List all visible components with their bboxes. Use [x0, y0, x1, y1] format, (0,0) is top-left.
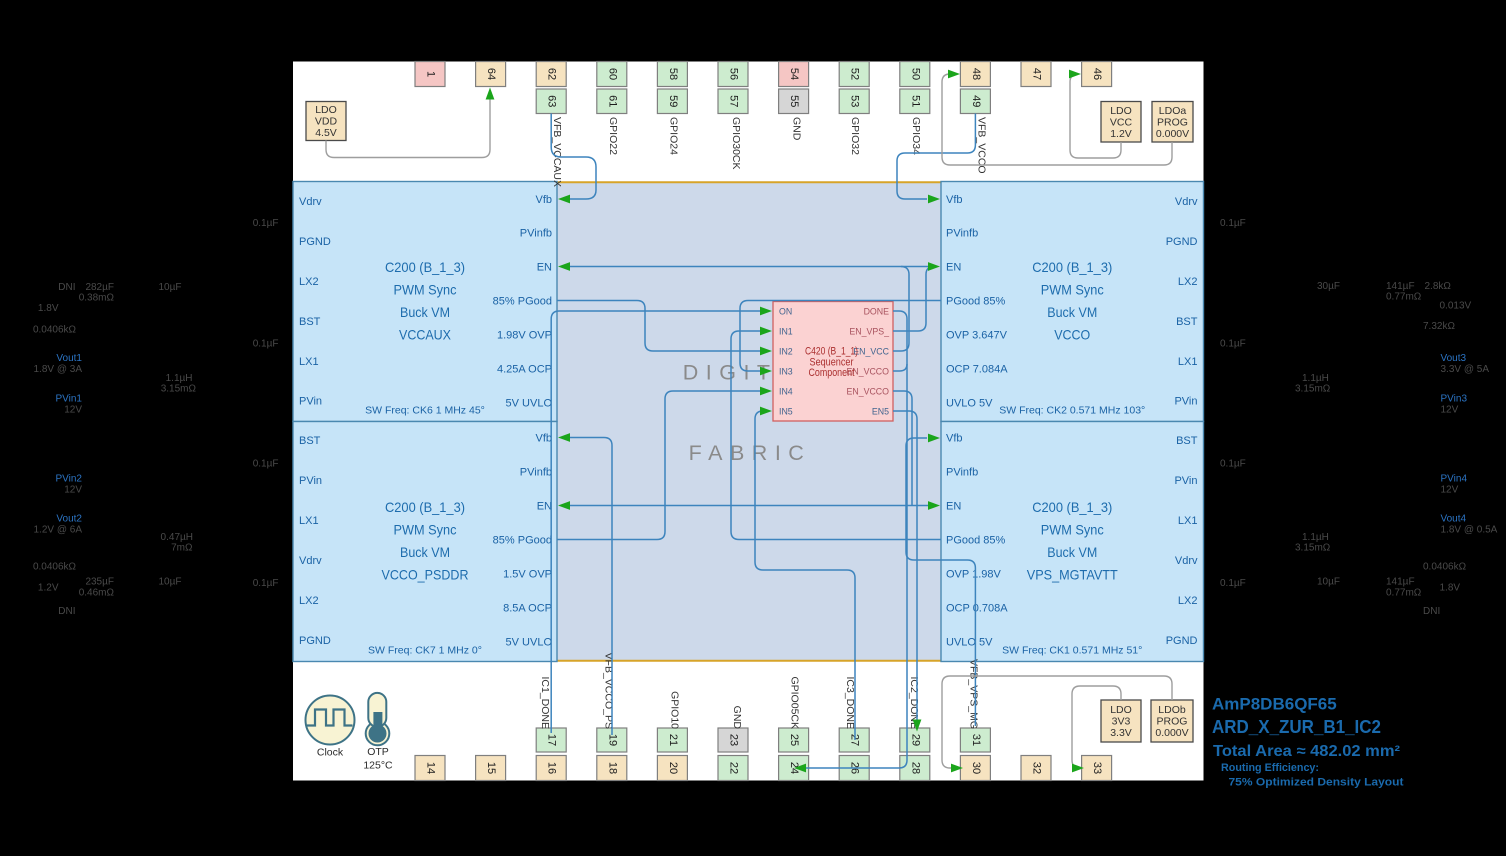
- svg-text:VCCO: VCCO: [1054, 327, 1090, 343]
- svg-text:VCCO_PSDDR: VCCO_PSDDR: [382, 567, 469, 583]
- svg-text:C200 (B_1_3): C200 (B_1_3): [385, 499, 465, 515]
- svg-text:85% PGood: 85% PGood: [493, 535, 552, 547]
- svg-text:EN: EN: [537, 501, 552, 513]
- svg-text:3.15mΩ: 3.15mΩ: [1295, 384, 1331, 395]
- svg-text:0.1µF: 0.1µF: [1220, 339, 1246, 350]
- svg-text:56: 56: [728, 68, 740, 80]
- svg-text:LX2: LX2: [1178, 276, 1198, 288]
- svg-text:Buck VM: Buck VM: [1047, 304, 1097, 320]
- svg-text:DNI: DNI: [1423, 606, 1440, 617]
- svg-text:Vfb: Vfb: [946, 433, 963, 445]
- svg-text:SW Freq: CK1 0.571 MHz 51°: SW Freq: CK1 0.571 MHz 51°: [1002, 645, 1142, 657]
- svg-text:12V: 12V: [1441, 405, 1459, 416]
- svg-text:LX2: LX2: [299, 276, 319, 288]
- svg-text:PVin: PVin: [1174, 396, 1197, 408]
- svg-text:53: 53: [849, 95, 861, 107]
- svg-text:VFB_VCCAUX: VFB_VCCAUX: [551, 117, 563, 187]
- svg-text:3.3V: 3.3V: [1110, 727, 1132, 739]
- svg-text:DONE: DONE: [864, 306, 890, 316]
- svg-text:C200 (B_1_3): C200 (B_1_3): [385, 259, 465, 275]
- svg-text:54: 54: [788, 68, 800, 80]
- svg-text:1.8V @ 3A: 1.8V @ 3A: [33, 364, 82, 375]
- svg-text:VCC: VCC: [1110, 116, 1133, 128]
- svg-text:125°C: 125°C: [363, 760, 393, 772]
- svg-text:Vfb: Vfb: [535, 433, 552, 445]
- svg-text:1: 1: [425, 71, 437, 77]
- svg-text:12V: 12V: [1441, 485, 1459, 496]
- svg-text:SW Freq: CK2 0.571 MHz 103°: SW Freq: CK2 0.571 MHz 103°: [999, 405, 1145, 417]
- svg-text:OCP 7.084A: OCP 7.084A: [946, 364, 1008, 376]
- svg-text:57: 57: [728, 95, 740, 107]
- svg-text:5V UVLO: 5V UVLO: [506, 398, 553, 410]
- svg-text:64: 64: [485, 68, 497, 80]
- svg-text:PGND: PGND: [1166, 635, 1198, 647]
- svg-text:LDOb: LDOb: [1158, 704, 1186, 716]
- svg-text:0.1µF: 0.1µF: [1220, 459, 1246, 470]
- svg-text:62: 62: [546, 68, 558, 80]
- svg-text:58: 58: [667, 68, 679, 80]
- svg-text:282µF: 282µF: [85, 282, 114, 293]
- svg-text:VCCAUX: VCCAUX: [399, 327, 452, 343]
- svg-text:0.1µF: 0.1µF: [1220, 218, 1246, 229]
- svg-text:ARD_X_ZUR_B1_IC2: ARD_X_ZUR_B1_IC2: [1212, 716, 1381, 737]
- svg-text:1.98V OVP: 1.98V OVP: [497, 330, 552, 342]
- svg-text:3.15mΩ: 3.15mΩ: [1295, 543, 1331, 554]
- svg-text:EN5: EN5: [872, 406, 889, 416]
- svg-text:GND: GND: [791, 117, 803, 141]
- svg-text:Vfb: Vfb: [946, 194, 963, 206]
- svg-text:29: 29: [909, 734, 921, 746]
- svg-text:1.1µH: 1.1µH: [166, 373, 193, 384]
- svg-text:AmP8DB6QF65: AmP8DB6QF65: [1212, 695, 1337, 714]
- svg-text:0.1µF: 0.1µF: [253, 339, 279, 350]
- svg-text:LDO: LDO: [1110, 704, 1132, 716]
- svg-text:Vfb: Vfb: [535, 194, 552, 206]
- svg-text:Vdrv: Vdrv: [1175, 196, 1198, 208]
- svg-text:PVin: PVin: [299, 396, 322, 408]
- svg-text:LX1: LX1: [299, 356, 319, 368]
- svg-text:OVP 3.647V: OVP 3.647V: [946, 330, 1008, 342]
- svg-text:0.77mΩ: 0.77mΩ: [1386, 292, 1422, 303]
- svg-text:LX1: LX1: [1178, 356, 1198, 368]
- svg-text:LX2: LX2: [299, 595, 319, 607]
- svg-text:10µF: 10µF: [159, 282, 182, 293]
- svg-text:16: 16: [546, 762, 558, 774]
- svg-text:0.77mΩ: 0.77mΩ: [1386, 588, 1422, 599]
- svg-text:C200 (B_1_3): C200 (B_1_3): [1032, 259, 1112, 275]
- svg-text:63: 63: [546, 95, 558, 107]
- svg-text:PGood 85%: PGood 85%: [946, 296, 1006, 308]
- svg-text:IC1_DONE: IC1_DONE: [539, 676, 551, 729]
- svg-text:VPS_MGTAVTT: VPS_MGTAVTT: [1027, 567, 1118, 583]
- svg-text:IN5: IN5: [779, 406, 793, 416]
- svg-text:IN1: IN1: [779, 326, 793, 336]
- svg-text:0.47µH: 0.47µH: [161, 532, 193, 543]
- svg-text:LX2: LX2: [1178, 595, 1198, 607]
- svg-text:PVinfb: PVinfb: [946, 467, 978, 479]
- svg-text:30: 30: [970, 762, 982, 774]
- svg-text:2.8kΩ: 2.8kΩ: [1425, 281, 1452, 292]
- svg-text:75% Optimized Density Layout: 75% Optimized Density Layout: [1229, 777, 1404, 789]
- svg-text:EN: EN: [946, 262, 961, 274]
- svg-text:GPIO05CK: GPIO05CK: [789, 676, 801, 729]
- svg-text:Component: Component: [809, 367, 855, 379]
- svg-text:PWM Sync: PWM Sync: [1041, 522, 1104, 538]
- svg-text:C200 (B_1_3): C200 (B_1_3): [1032, 499, 1112, 515]
- svg-text:PWM Sync: PWM Sync: [1041, 282, 1104, 298]
- svg-text:Buck VM: Buck VM: [400, 304, 450, 320]
- svg-text:Total Area ≈ 482.02 mm²: Total Area ≈ 482.02 mm²: [1213, 743, 1400, 760]
- svg-text:PVinfb: PVinfb: [520, 467, 552, 479]
- svg-text:EN: EN: [946, 501, 961, 513]
- svg-text:141µF: 141µF: [1386, 281, 1415, 292]
- svg-text:IN3: IN3: [779, 366, 793, 376]
- svg-text:PVin3: PVin3: [1441, 394, 1468, 405]
- svg-text:Buck VM: Buck VM: [1047, 544, 1097, 560]
- svg-text:Vout2: Vout2: [56, 514, 82, 525]
- svg-text:31: 31: [970, 734, 982, 746]
- svg-text:0.1µF: 0.1µF: [253, 459, 279, 470]
- svg-text:0.1µF: 0.1µF: [253, 578, 279, 589]
- svg-text:Vdrv: Vdrv: [299, 196, 322, 208]
- svg-text:FABRIC: FABRIC: [689, 441, 812, 465]
- svg-text:4.25A OCP: 4.25A OCP: [497, 364, 552, 376]
- svg-text:UVLO 5V: UVLO 5V: [946, 398, 993, 410]
- svg-text:0.0406kΩ: 0.0406kΩ: [1423, 562, 1467, 573]
- svg-text:10µF: 10µF: [1317, 577, 1340, 588]
- svg-text:SW Freq: CK7 1 MHz 0°: SW Freq: CK7 1 MHz 0°: [368, 645, 482, 657]
- svg-text:12V: 12V: [64, 485, 82, 496]
- svg-text:141µF: 141µF: [1386, 577, 1415, 588]
- svg-text:8.5A OCP: 8.5A OCP: [503, 603, 552, 615]
- svg-text:IN4: IN4: [779, 386, 793, 396]
- svg-text:Vdrv: Vdrv: [299, 555, 322, 567]
- svg-text:PVin2: PVin2: [55, 474, 82, 485]
- svg-text:14: 14: [425, 762, 437, 774]
- svg-text:19: 19: [606, 734, 618, 746]
- svg-text:50: 50: [909, 68, 921, 80]
- svg-text:GPIO30CK: GPIO30CK: [730, 117, 742, 170]
- svg-text:22: 22: [728, 762, 740, 774]
- svg-text:Buck VM: Buck VM: [400, 544, 450, 560]
- svg-text:BST: BST: [1176, 316, 1198, 328]
- svg-text:ON: ON: [779, 306, 792, 316]
- svg-text:1.8V: 1.8V: [38, 303, 59, 314]
- svg-text:7mΩ: 7mΩ: [171, 543, 193, 554]
- svg-text:47: 47: [1031, 68, 1043, 80]
- svg-text:PGND: PGND: [299, 635, 331, 647]
- svg-text:49: 49: [970, 95, 982, 107]
- svg-text:Clock: Clock: [317, 747, 344, 759]
- svg-text:32: 32: [1031, 762, 1043, 774]
- svg-text:PROG: PROG: [1157, 716, 1188, 728]
- svg-text:3.15mΩ: 3.15mΩ: [161, 384, 197, 395]
- svg-text:GPIO32: GPIO32: [849, 117, 861, 155]
- svg-text:61: 61: [606, 95, 618, 107]
- svg-text:25: 25: [788, 734, 800, 746]
- svg-text:LDO: LDO: [315, 104, 337, 116]
- svg-text:LDOa: LDOa: [1159, 105, 1187, 117]
- svg-text:60: 60: [606, 68, 618, 80]
- svg-text:PGood 85%: PGood 85%: [946, 535, 1006, 547]
- svg-text:PGND: PGND: [299, 236, 331, 248]
- svg-text:59: 59: [667, 95, 679, 107]
- svg-text:3.3V @ 5A: 3.3V @ 5A: [1441, 364, 1490, 375]
- svg-text:1.8V: 1.8V: [1440, 583, 1461, 594]
- svg-text:1.1µH: 1.1µH: [1302, 532, 1329, 543]
- svg-text:GND: GND: [731, 706, 743, 730]
- svg-text:235µF: 235µF: [85, 577, 114, 588]
- svg-text:20: 20: [667, 762, 679, 774]
- svg-text:PVin: PVin: [299, 475, 322, 487]
- svg-text:52: 52: [849, 68, 861, 80]
- svg-text:Vout3: Vout3: [1441, 353, 1467, 364]
- svg-text:1.5V OVP: 1.5V OVP: [503, 569, 552, 581]
- svg-text:OTP: OTP: [367, 746, 389, 758]
- svg-text:GPIO24: GPIO24: [667, 117, 679, 155]
- svg-text:EN: EN: [537, 262, 552, 274]
- svg-text:0.1µF: 0.1µF: [1220, 578, 1246, 589]
- svg-text:LDO: LDO: [1110, 105, 1132, 117]
- svg-text:Routing Efficiency:: Routing Efficiency:: [1221, 762, 1319, 774]
- svg-text:Vdrv: Vdrv: [1175, 555, 1198, 567]
- svg-text:18: 18: [606, 762, 618, 774]
- svg-text:55: 55: [788, 95, 800, 107]
- svg-text:BST: BST: [299, 316, 321, 328]
- svg-text:VFB_VPS_MG: VFB_VPS_MG: [967, 659, 979, 729]
- svg-text:PVin4: PVin4: [1441, 474, 1468, 485]
- svg-text:BST: BST: [299, 435, 321, 447]
- svg-text:48: 48: [970, 68, 982, 80]
- svg-text:1.2V @ 6A: 1.2V @ 6A: [33, 525, 82, 536]
- svg-text:0.46mΩ: 0.46mΩ: [79, 588, 115, 599]
- svg-text:PWM Sync: PWM Sync: [394, 282, 457, 298]
- svg-text:LX1: LX1: [1178, 515, 1198, 527]
- svg-text:46: 46: [1091, 68, 1103, 80]
- svg-text:0.0406kΩ: 0.0406kΩ: [33, 325, 77, 336]
- svg-text:BST: BST: [1176, 435, 1198, 447]
- svg-text:PGND: PGND: [1166, 236, 1198, 248]
- svg-text:0.0406kΩ: 0.0406kΩ: [33, 562, 77, 573]
- svg-text:33: 33: [1091, 762, 1103, 774]
- svg-text:GPIO10: GPIO10: [668, 691, 680, 729]
- svg-text:1.8V @ 0.5A: 1.8V @ 0.5A: [1441, 525, 1498, 536]
- svg-text:17: 17: [546, 734, 558, 746]
- svg-text:PWM Sync: PWM Sync: [394, 522, 457, 538]
- svg-text:Vout1: Vout1: [56, 353, 82, 364]
- svg-text:7.32kΩ: 7.32kΩ: [1423, 321, 1455, 332]
- svg-text:EN_VPS_: EN_VPS_: [849, 326, 889, 336]
- svg-text:OCP 0.708A: OCP 0.708A: [946, 603, 1008, 615]
- svg-text:28: 28: [909, 762, 921, 774]
- svg-text:IN2: IN2: [779, 346, 793, 356]
- svg-text:PROG: PROG: [1157, 116, 1188, 128]
- svg-text:5V UVLO: 5V UVLO: [506, 637, 553, 649]
- svg-text:PVinfb: PVinfb: [520, 228, 552, 240]
- svg-text:0.1µF: 0.1µF: [253, 218, 279, 229]
- svg-text:VDD: VDD: [315, 116, 338, 128]
- svg-text:EN_VCC: EN_VCC: [853, 346, 889, 356]
- svg-text:UVLO 5V: UVLO 5V: [946, 637, 993, 649]
- svg-text:DNI: DNI: [58, 606, 75, 617]
- svg-text:GPIO34: GPIO34: [910, 117, 922, 155]
- svg-text:PVinfb: PVinfb: [946, 228, 978, 240]
- svg-text:1.1µH: 1.1µH: [1302, 373, 1329, 384]
- svg-text:21: 21: [667, 734, 679, 746]
- svg-text:PVin1: PVin1: [55, 394, 82, 405]
- svg-text:LX1: LX1: [299, 515, 319, 527]
- svg-text:DNI: DNI: [58, 282, 75, 293]
- svg-text:0.38mΩ: 0.38mΩ: [79, 293, 115, 304]
- svg-text:0.000V: 0.000V: [1155, 727, 1188, 739]
- svg-text:0.000V: 0.000V: [1156, 128, 1189, 140]
- svg-text:85% PGood: 85% PGood: [493, 296, 552, 308]
- svg-text:1.2V: 1.2V: [1110, 128, 1132, 140]
- svg-text:30µF: 30µF: [1317, 281, 1340, 292]
- svg-text:Vout4: Vout4: [1441, 514, 1467, 525]
- svg-text:SW Freq: CK6 1 MHz 45°: SW Freq: CK6 1 MHz 45°: [365, 405, 485, 417]
- svg-text:OVP 1.98V: OVP 1.98V: [946, 569, 1001, 581]
- svg-text:EN_VCCO: EN_VCCO: [846, 386, 889, 396]
- svg-text:10µF: 10µF: [159, 577, 182, 588]
- svg-text:51: 51: [909, 95, 921, 107]
- svg-text:0.013V: 0.013V: [1440, 301, 1472, 312]
- svg-text:GPIO22: GPIO22: [607, 117, 619, 155]
- svg-text:23: 23: [728, 734, 740, 746]
- svg-text:12V: 12V: [64, 405, 82, 416]
- svg-text:4.5V: 4.5V: [315, 127, 337, 139]
- svg-text:PVin: PVin: [1174, 475, 1197, 487]
- svg-text:1.2V: 1.2V: [38, 583, 59, 594]
- svg-text:3V3: 3V3: [1112, 716, 1131, 728]
- svg-text:15: 15: [485, 762, 497, 774]
